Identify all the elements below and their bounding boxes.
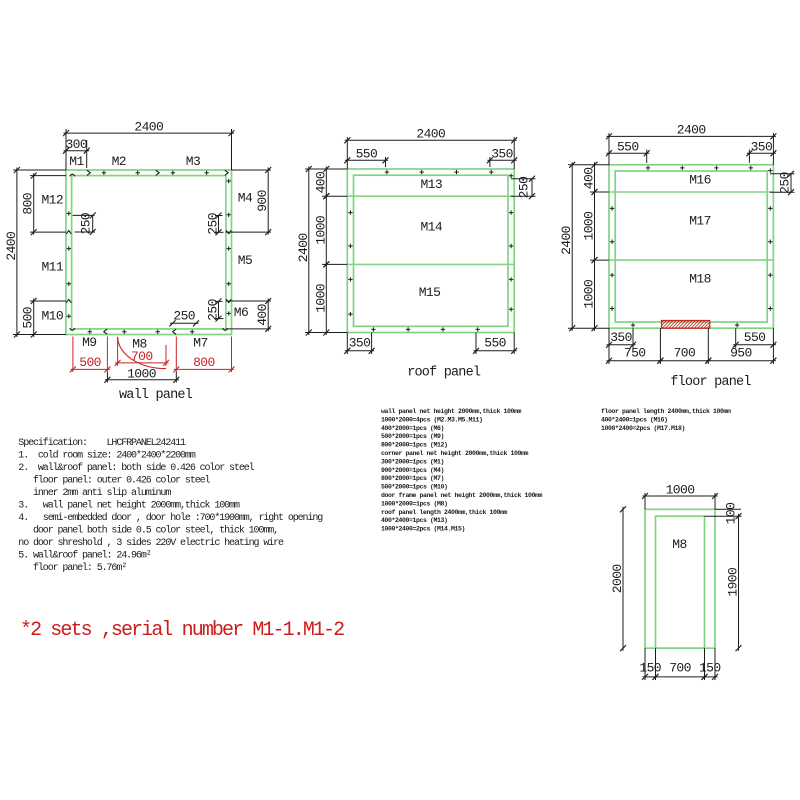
svg-text:1000*2400=2pcs (M14.M15): 1000*2400=2pcs (M14.M15) [381,526,465,533]
svg-text:M7: M7 [193,336,207,351]
svg-text:door panel both side 0.5 color: door panel both side 0.5 color steel, th… [18,525,278,537]
svg-text:M12: M12 [41,193,63,208]
svg-text:1000*2400=2pcs (M17.M18): 1000*2400=2pcs (M17.M18) [601,425,685,432]
svg-text:5. wall&roof panel: 24.96m²: 5. wall&roof panel: 24.96m² [18,550,150,562]
svg-text:4. semi-embedded door , door: 4. semi-embedded door , door hole :700*1… [18,512,323,524]
svg-text:2400: 2400 [416,127,445,142]
svg-text:400*2000=1pcs (M6): 400*2000=1pcs (M6) [381,425,444,432]
svg-text:250: 250 [206,213,221,235]
svg-text:800: 800 [21,193,36,215]
svg-text:1900: 1900 [726,568,741,597]
svg-text:2400: 2400 [134,119,163,134]
svg-text:M18: M18 [689,272,711,287]
svg-text:floor panel: outer 0.426 color: floor panel: outer 0.426 color steel [18,475,210,487]
svg-text:700: 700 [674,346,696,361]
svg-text:250: 250 [778,172,793,194]
svg-text:1000: 1000 [127,366,156,381]
svg-text:1000*2000=4pcs (M2.M3.M5.M11): 1000*2000=4pcs (M2.M3.M5.M11) [381,416,483,423]
svg-text:wall panel: wall panel [119,388,193,403]
svg-text:400*2400=1pcs (M13): 400*2400=1pcs (M13) [381,517,448,524]
svg-text:M3: M3 [186,154,200,169]
svg-text:950: 950 [730,346,752,361]
svg-text:100: 100 [724,503,739,525]
svg-text:800*2000=1pcs (M12): 800*2000=1pcs (M12) [381,442,448,449]
svg-text:400: 400 [313,172,328,194]
svg-text:550: 550 [356,147,378,162]
svg-text:2. wall&roof panel: both side: 2. wall&roof panel: both side 0.426 colo… [18,462,254,474]
svg-text:250: 250 [206,299,221,321]
svg-text:900: 900 [255,190,270,212]
svg-text:no door shreshold , 3 sides 22: no door shreshold , 3 sides 220V electri… [18,537,284,549]
svg-text:700: 700 [131,349,153,364]
svg-text:M14: M14 [420,220,442,235]
svg-text:inner 2mm anti slip aluminum: inner 2mm anti slip aluminum [18,487,171,499]
svg-text:150: 150 [699,661,721,676]
svg-text:1000: 1000 [666,482,695,497]
svg-text:roof panel: roof panel [407,366,481,381]
svg-text:300*2000=1pcs (M1): 300*2000=1pcs (M1) [381,458,444,465]
svg-text:350: 350 [751,140,773,155]
svg-text:550: 550 [744,330,766,345]
svg-text:1000: 1000 [313,216,328,245]
svg-text:floor panel: 5.76m²: floor panel: 5.76m² [18,562,126,574]
svg-text:550: 550 [617,140,639,155]
svg-text:800*2000=1pcs (M7): 800*2000=1pcs (M7) [381,475,444,482]
svg-text:M5: M5 [238,253,252,268]
svg-text:300: 300 [65,137,87,152]
svg-text:700: 700 [669,661,691,676]
svg-text:350: 350 [610,330,632,345]
svg-text:door frame panel net height 20: door frame panel net height 2000mm,thick… [381,492,543,499]
svg-text:floor panel length 2400mm,thic: floor panel length 2400mm,thick 100mm [601,408,731,415]
svg-text:M4: M4 [238,191,253,206]
svg-text:M10: M10 [41,309,63,324]
svg-text:M1: M1 [69,154,84,169]
svg-text:1000: 1000 [313,284,328,313]
svg-text:150: 150 [639,661,661,676]
svg-text:M8: M8 [672,537,686,552]
svg-text:250: 250 [173,309,195,324]
svg-text:1000: 1000 [582,280,597,309]
svg-text:2400: 2400 [296,233,311,262]
svg-text:400: 400 [582,168,597,190]
svg-text:3. wall panel net height 200: 3. wall panel net height 2000mm,thick 10… [18,500,240,512]
svg-text:500: 500 [21,307,36,329]
svg-text:M15: M15 [419,285,441,300]
svg-text:250: 250 [79,213,94,235]
svg-text:M16: M16 [689,173,711,188]
svg-text:1. cold room size: 2400*2400*: 1. cold room size: 2400*2400*2200mm [18,450,196,462]
svg-text:corner panel net height 2000mm: corner panel net height 2000mm,thick 100… [381,450,529,457]
svg-text:400: 400 [255,304,270,326]
svg-text:M13: M13 [420,177,442,192]
svg-text:900*2000=1pcs (M4): 900*2000=1pcs (M4) [381,467,444,474]
svg-text:2400: 2400 [677,123,706,138]
svg-text:2000: 2000 [610,564,625,593]
svg-text:550: 550 [484,336,506,351]
svg-text:roof panel length 2400mm,thick: roof panel length 2400mm,thick 100mm [381,509,508,516]
svg-text:floor panel: floor panel [670,375,751,390]
svg-text:M6: M6 [234,305,248,320]
svg-text:350: 350 [491,147,513,162]
svg-text:250: 250 [517,177,532,199]
svg-text:500: 500 [79,355,101,370]
svg-text:M9: M9 [82,335,96,350]
svg-text:1000*2000=1pcs (M8): 1000*2000=1pcs (M8) [381,500,448,507]
svg-text:wall panel net height 2000mm,t: wall panel net height 2000mm,thick 100mm [381,408,522,415]
svg-text:2400: 2400 [4,232,19,261]
svg-text:*2 sets ,serial number M1-1.M1: *2 sets ,serial number M1-1.M1-2 [20,619,344,642]
svg-text:750: 750 [624,346,646,361]
svg-text:400*2400=1pcs (M16): 400*2400=1pcs (M16) [601,416,668,423]
svg-text:2400: 2400 [559,226,574,255]
svg-text:M2: M2 [112,154,126,169]
svg-text:Specification: LHCFRPANEL24: Specification: LHCFRPANEL242411 [18,437,186,449]
svg-text:M17: M17 [689,214,711,229]
svg-text:350: 350 [349,336,371,351]
svg-text:800: 800 [193,355,215,370]
svg-text:M11: M11 [41,260,63,275]
svg-text:500*2000=1pcs (M10): 500*2000=1pcs (M10) [381,484,448,491]
svg-text:1000: 1000 [582,212,597,241]
svg-text:500*2000=1pcs (M9): 500*2000=1pcs (M9) [381,433,444,440]
